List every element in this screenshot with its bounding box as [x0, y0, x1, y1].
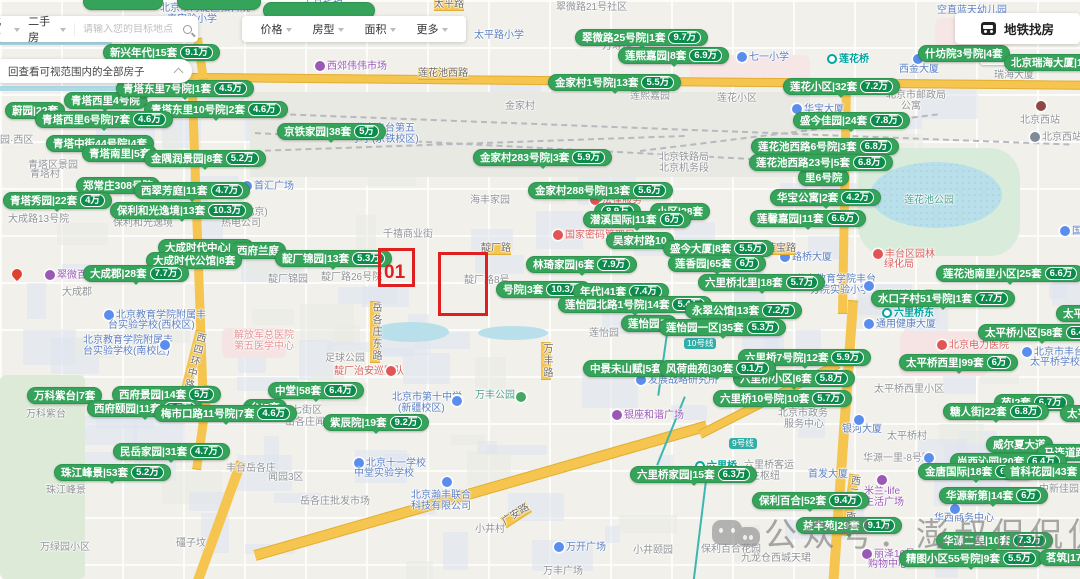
listing-pill[interactable]: 珠江峰景|53套5.2万 [54, 464, 171, 481]
listing-pill[interactable]: 潜溪国际|11套6万 [583, 211, 691, 228]
search-card: 北京 二手房 [0, 16, 198, 42]
listing-pill[interactable]: 六里桥10号院|10套5.7万 [713, 390, 852, 407]
chevron-down-icon [442, 28, 448, 35]
listing-pill[interactable]: 莲花池南里小区|25套6.6万 [936, 265, 1080, 282]
listing-pill[interactable]: 太平桥小区|58套6.4万 [978, 324, 1080, 341]
listing-pill[interactable]: 金家村288号院|13套5.6万 [528, 182, 673, 199]
listing-pill[interactable]: 水口子村51号院|1套7.7万 [871, 290, 1015, 307]
annotation-rect-02 [438, 252, 488, 316]
listing-pill[interactable]: 华源新第|14套6万 [939, 487, 1048, 504]
listing-pill[interactable]: 西翠芳庭|11套4.7万 [134, 182, 250, 199]
listing-pill[interactable]: 金家村1号院|13套5.5万 [548, 74, 681, 91]
train-icon [981, 22, 996, 35]
annotation-label: 01 [384, 263, 405, 282]
listing-pill[interactable]: 风荷曲苑|30套9.1万 [659, 360, 776, 377]
listing-pill[interactable]: 太平 [1060, 405, 1080, 422]
listing-pill[interactable]: 保利和光逸境|13套10.3万 [110, 202, 253, 219]
listing-pill[interactable]: 林琦家园|6套7.9万 [526, 256, 637, 273]
listing-pill[interactable]: 里6号院 [798, 169, 849, 186]
listing-pill[interactable]: 梅市口路11号院|7套4.6万 [154, 405, 297, 422]
filter-item[interactable]: 房型 [313, 21, 344, 37]
map-canvas[interactable]: 太平路翠微路21号社区太平路小学万寿路上品折扣北京市海淀区教科院来实验小学空直蓝… [0, 0, 1080, 579]
chevron-down-icon [14, 28, 20, 35]
search-input[interactable] [83, 24, 175, 35]
filter-item[interactable]: 更多 [417, 21, 448, 37]
listing-pill[interactable]: 中堂|58套6.4万 [268, 382, 364, 399]
results-bar[interactable]: 回查看可视范围内的全部房子 [0, 59, 192, 83]
listing-pill[interactable]: 翠微路25号院|1套9.7万 [575, 29, 708, 46]
listing-pill[interactable]: 莲花池西路23号|5套6.8万 [749, 154, 893, 171]
listing-pill[interactable]: 永翠公馆|13套7.2万 [685, 302, 802, 319]
listing-pill[interactable]: 什坊院3号院|4套 [918, 45, 1010, 62]
filter-item[interactable]: 面积 [365, 21, 396, 37]
filter-bar: 价格房型面积更多 [242, 16, 466, 42]
listing-pill[interactable]: 莲花池西路6号院|3套6.8万 [751, 138, 899, 155]
listing-pill[interactable]: 中景未山赋|5套 [583, 360, 669, 377]
pill-layer: 新兴年代|15套9.1万翠微路25号院|1套9.7万莲熙嘉园|8套6.9万什坊院… [0, 0, 1080, 579]
metro-search-button[interactable]: 地铁找房 [955, 13, 1080, 44]
listing-pill[interactable]: 太平 [1056, 305, 1080, 322]
listing-pill[interactable]: 首科花园|43套7 [1003, 463, 1080, 480]
listing-pill[interactable] [83, 0, 163, 10]
listing-pill[interactable]: 莲怡园一区|35套5.3万 [659, 319, 786, 336]
listing-pill[interactable]: 莲花小区|32套7.2万 [783, 78, 900, 95]
listing-pill[interactable]: 莲香园|65套6万 [668, 255, 766, 272]
listing-pill[interactable]: 糖人街|22套6.8万 [943, 403, 1049, 420]
watermark-text: 公众号：澎叔侃侃侃 [764, 508, 1080, 556]
listing-pill[interactable]: 靛厂锦园|13套5.3万 [275, 250, 392, 267]
chevron-down-icon [286, 28, 292, 35]
chevron-down-icon [390, 28, 396, 35]
listing-pill[interactable]: 莲熙嘉园|8套6.9万 [618, 47, 729, 64]
listing-pill[interactable]: 金家村283号院|3套5.9万 [473, 149, 612, 166]
listing-pill[interactable]: 大成郡|28套7.7万 [83, 265, 189, 282]
listing-pill[interactable]: 北京瑞海大厦|1套 [1004, 54, 1080, 71]
listing-pill[interactable]: 京铁家园|38套5万 [277, 123, 386, 140]
filter-item[interactable]: 价格 [261, 21, 292, 37]
listing-pill[interactable]: 盛今佳园|24套7.8万 [793, 112, 910, 129]
metro-search-label: 地铁找房 [1004, 19, 1054, 38]
listing-pill[interactable]: 华宝公寓|2套4.2万 [770, 189, 881, 206]
listing-pill[interactable]: 民岳家园|31套4.7万 [113, 443, 230, 460]
divider [74, 23, 75, 36]
listing-pill[interactable]: 紫辰院|19套9.2万 [323, 414, 429, 431]
listing-pill[interactable]: 六里桥家园|15套6.3万 [630, 466, 757, 483]
search-icon[interactable] [183, 25, 192, 34]
chevron-up-icon[interactable] [174, 68, 184, 78]
category-selector[interactable]: 二手房 [28, 13, 52, 45]
listing-pill[interactable]: 太平桥西里|99套6万 [899, 354, 1018, 371]
results-bar-text: 回查看可视范围内的全部房子 [8, 64, 145, 79]
wechat-ghost-icon [736, 527, 760, 547]
chevron-down-icon [60, 28, 66, 35]
city-selector[interactable]: 北京 [0, 13, 6, 45]
listing-pill[interactable]: 保利百合|52套9.4万 [752, 492, 869, 509]
listing-pill[interactable]: 六里桥北里|18套5.7万 [698, 274, 825, 291]
listing-pill[interactable]: 青塔秀园|22套4万 [3, 192, 112, 209]
annotation-rect-01: 01 [378, 248, 415, 287]
listing-pill[interactable] [177, 0, 261, 10]
chevron-down-icon [338, 28, 344, 35]
watermark: 公众号：澎叔侃侃侃 [712, 508, 1080, 556]
listing-pill[interactable]: 青塔西里6号院|7套4.6万 [35, 111, 173, 128]
listing-pill[interactable]: 金隅润景园|8套5.2万 [144, 150, 266, 167]
listing-pill[interactable]: 莲馨嘉园|11套6.6万 [750, 210, 866, 227]
